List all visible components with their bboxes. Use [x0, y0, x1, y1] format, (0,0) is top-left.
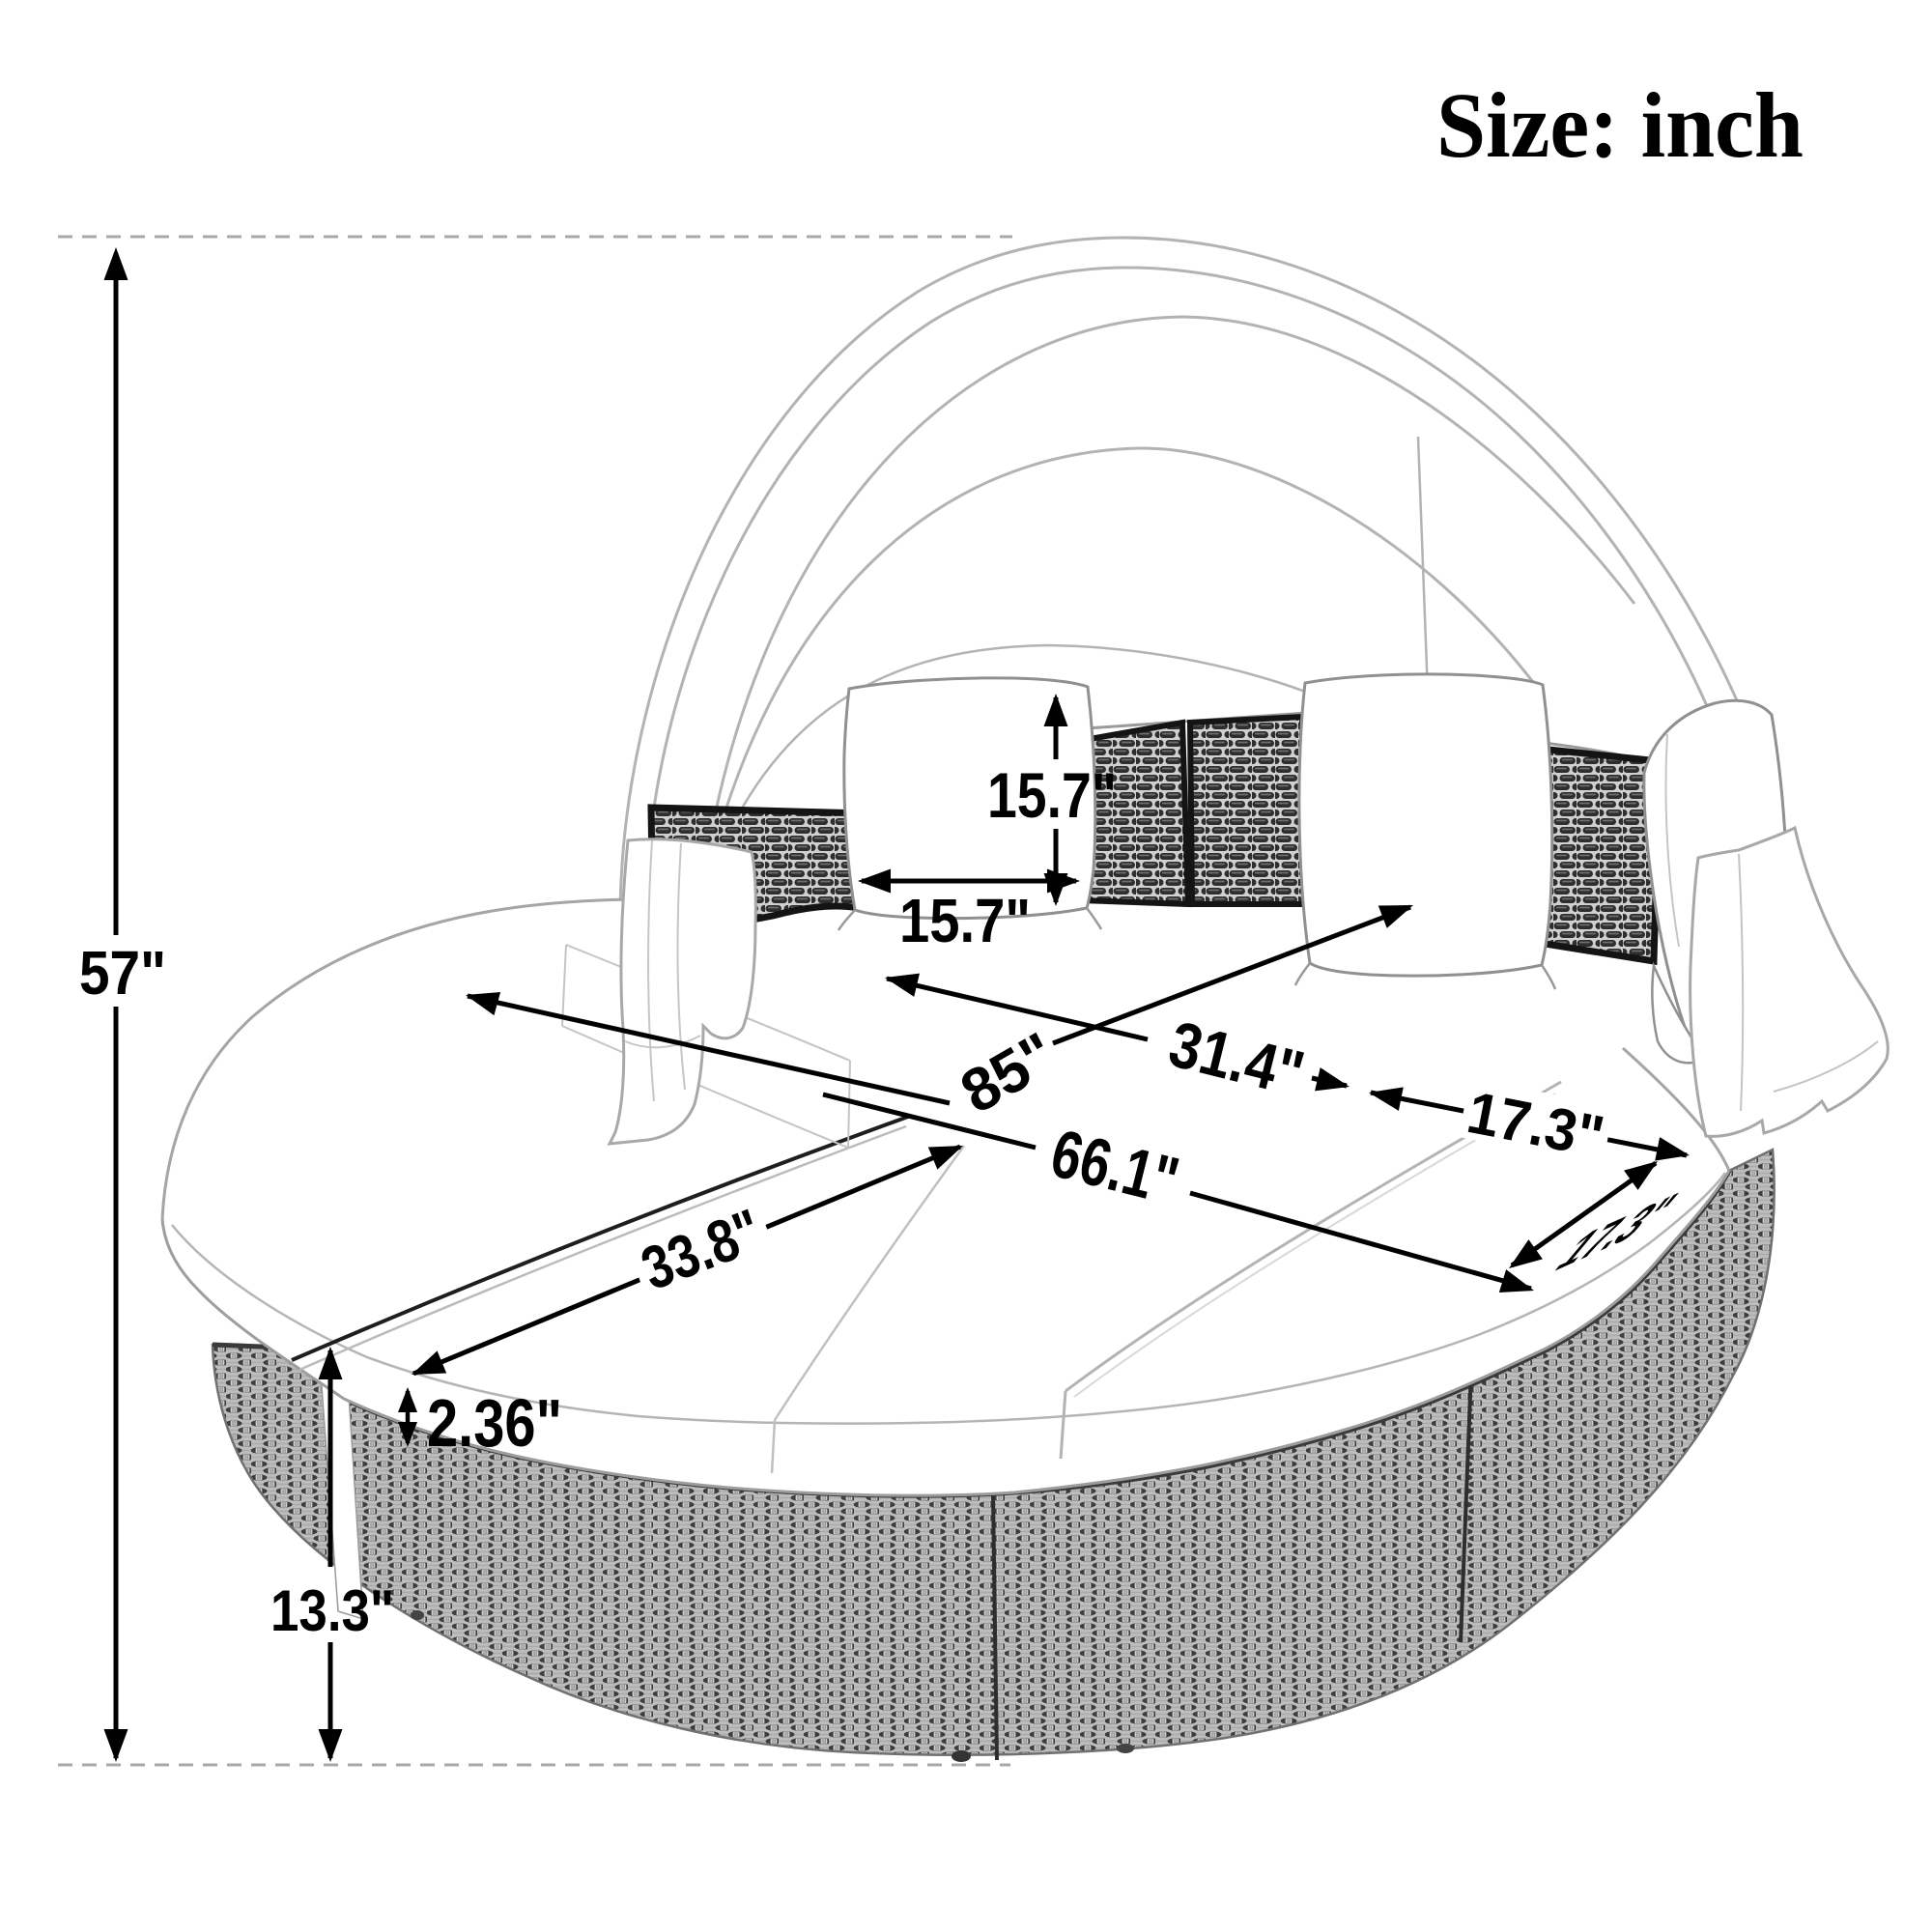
svg-text:57": 57"	[79, 938, 166, 1008]
svg-text:2.36": 2.36"	[427, 1385, 562, 1461]
svg-text:Size: inch: Size: inch	[1436, 73, 1804, 177]
svg-text:13.3": 13.3"	[270, 1578, 394, 1643]
svg-text:15.7": 15.7"	[899, 886, 1031, 955]
svg-text:15.7": 15.7"	[987, 759, 1117, 831]
